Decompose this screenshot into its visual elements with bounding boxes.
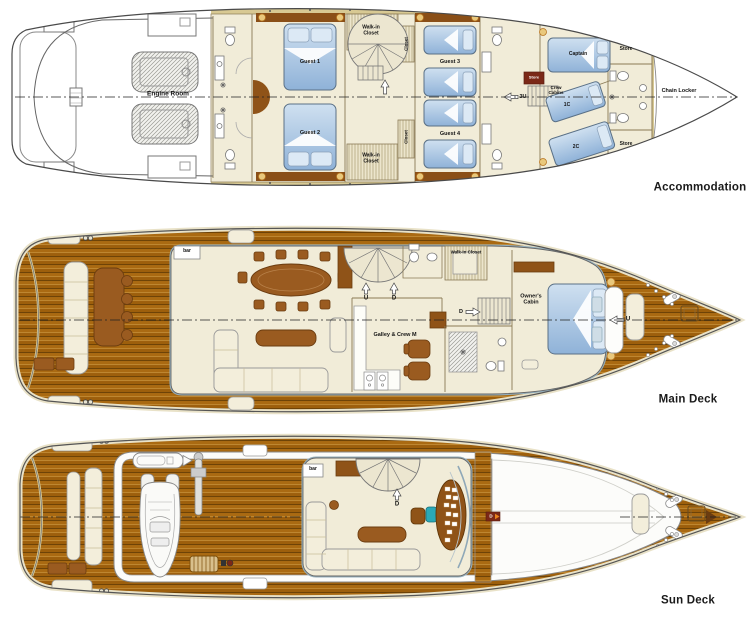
steps [34,358,54,370]
dresser [514,262,554,272]
engine-icon [132,52,198,92]
aft-deck-bench [64,262,88,374]
walkin-closet-top-label: Walk-in Closet [362,25,380,37]
engine-icon [132,104,198,144]
captain-label: Captain [569,52,587,58]
coffee-table-icon [256,330,316,346]
deck-bench [85,468,102,565]
steps [48,563,67,574]
window [592,327,602,342]
accommodation-deck-label: Accommodation [654,181,747,194]
coffee-table-icon [358,527,406,542]
main-walkin-closet-label: Walk-in Closet [451,249,482,254]
guest1-label: Guest 1 [300,59,320,65]
guest1-double-bed-icon [284,24,336,90]
cabin-1c-label: 1C [564,103,570,109]
crew-cabins-label: Crew Cabins [548,85,563,95]
sink-icon [498,338,506,346]
store-bow-bottom-label: Store [620,142,633,148]
galley-label: Galley & Crew M [373,332,416,338]
guest4-label: Guest 4 [440,131,460,137]
guest2-label: Guest 2 [300,130,320,136]
sun-bar-label: bar [309,467,317,473]
stairs-down-marker: D [392,296,396,303]
main-deck-label: Main Deck [659,393,718,406]
single-bed-icon [424,26,476,54]
store-mid-label: Store [529,76,539,81]
engine-room-label: Engine Room [147,90,189,97]
window [592,297,602,312]
foredeck-stairs-marker: U [626,317,630,324]
crew-stairs-down-marker: D [459,309,463,315]
side-gate [243,578,267,589]
sun-deck-plan [20,436,740,598]
deck-plan-drawing [0,0,753,627]
sun-deck-label: Sun Deck [661,594,715,607]
owners-cabin-label: Owner's Cabin [520,294,541,307]
single-bed-icon [424,140,476,168]
stairs-up-marker: U [364,296,368,303]
stairs-3u-marker: 3U [519,94,526,100]
cabin-2c-label: 2C [573,145,579,151]
owner-double-bed-icon [548,284,608,354]
helm-door-marker [486,512,500,521]
bow-seat [632,494,649,534]
sun-stairs-down-marker: D [395,502,399,509]
side-gate [243,445,267,456]
chart-chair [411,508,425,524]
helm-chair-icon [426,507,437,522]
closet-top-label: Closet [403,37,408,51]
single-bed-icon [424,68,476,96]
guest2-double-bed-icon [284,104,336,170]
toilet-icon [486,362,496,371]
deck-bench [67,472,80,560]
main-bar-label: bar [183,249,191,255]
helm-door-marker-label: D [489,513,492,518]
main-deck-plan [16,228,740,412]
steps [56,358,74,370]
yacht-deck-plans: Engine Room Guest 1 Guest 2 Guest 3 Gues… [0,0,753,627]
accommodation-deck-plan [12,4,753,194]
store-bow-top-label: Store [620,47,633,53]
guest3-label: Guest 3 [440,59,460,65]
single-bed-icon [424,100,476,126]
side-gate [228,230,254,243]
chain-locker-label: Chain Locker [662,88,697,94]
bench [522,360,538,369]
closet-bottom-label: Closet [403,130,408,144]
side-gate [228,397,254,410]
walkin-closet-bottom-label: Walk-in Closet [362,153,380,165]
jetski-icon [133,453,192,468]
steps [69,563,86,574]
